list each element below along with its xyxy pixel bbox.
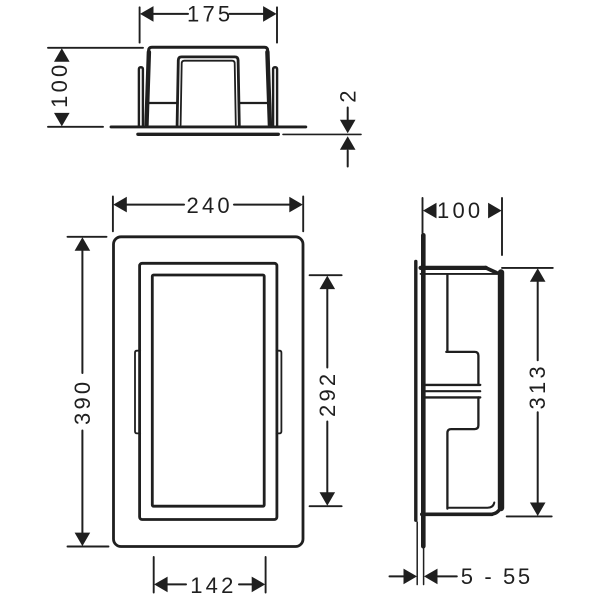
svg-text:142: 142 xyxy=(190,573,236,598)
svg-text:390: 390 xyxy=(70,379,95,425)
svg-text:100: 100 xyxy=(437,198,483,223)
svg-text:313: 313 xyxy=(525,363,550,409)
svg-text:100: 100 xyxy=(47,62,72,108)
svg-text:240: 240 xyxy=(187,193,233,218)
svg-text:2: 2 xyxy=(336,87,361,102)
svg-text:292: 292 xyxy=(315,371,340,417)
svg-text:175: 175 xyxy=(187,2,233,27)
svg-text:5 - 55: 5 - 55 xyxy=(461,564,533,589)
